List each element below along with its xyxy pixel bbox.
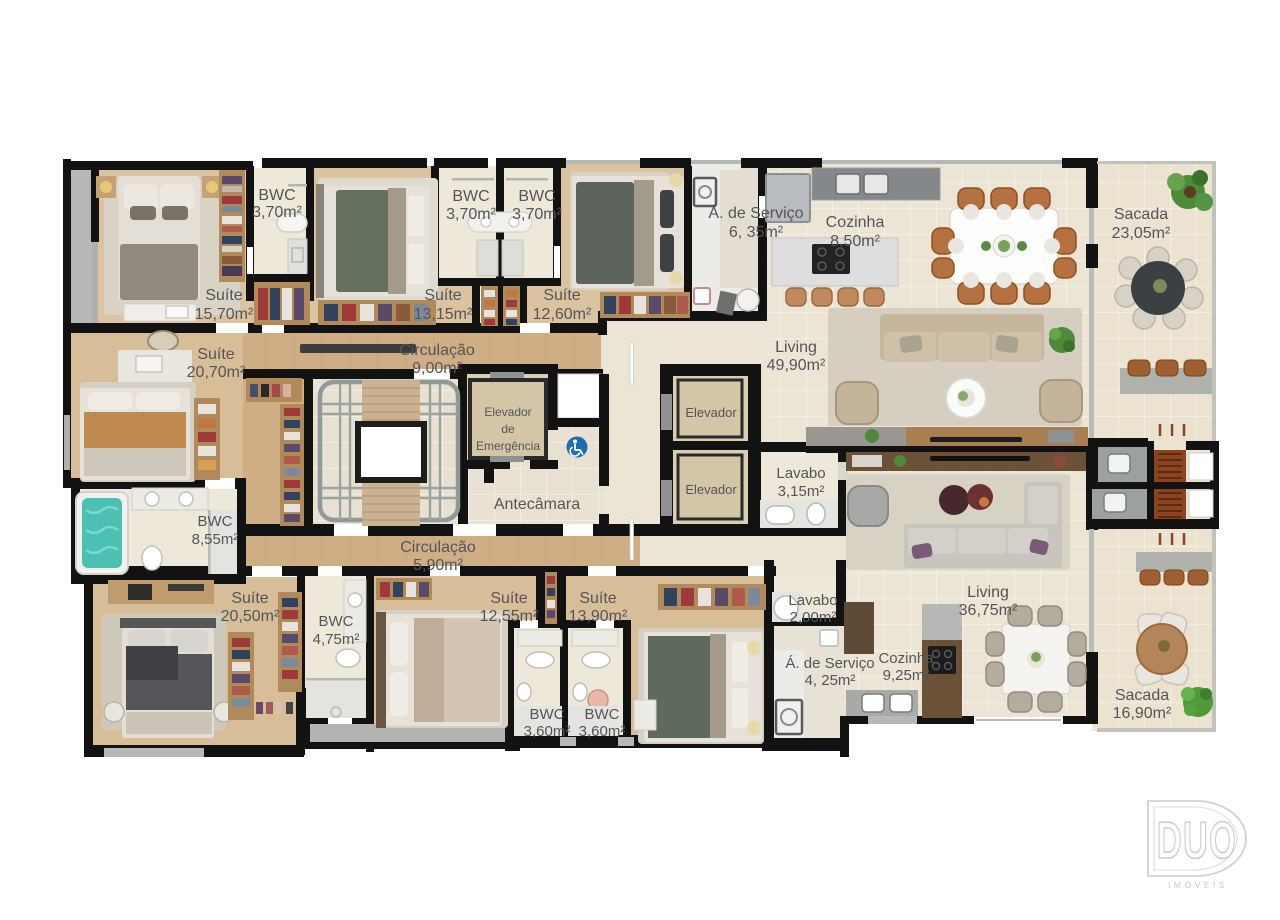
svg-text:Suíte: Suíte [231,590,268,607]
svg-text:8,55m²: 8,55m² [192,531,239,548]
svg-text:3,70m²: 3,70m² [512,206,562,223]
svg-text:16,90m²: 16,90m² [1113,705,1172,722]
svg-text:3,60m²: 3,60m² [524,723,571,740]
svg-text:Suíte: Suíte [579,590,616,607]
svg-text:Á. de Serviço: Á. de Serviço [785,655,874,672]
svg-text:4, 25m²: 4, 25m² [805,672,856,689]
svg-text:Lavabo: Lavabo [788,592,837,609]
svg-text:Cozinha: Cozinha [878,650,934,667]
svg-text:Elevador: Elevador [484,405,531,419]
svg-text:23,05m²: 23,05m² [1112,225,1171,242]
svg-text:BWC: BWC [452,188,489,205]
svg-text:Antecâmara: Antecâmara [494,496,580,513]
svg-text:BWC: BWC [530,706,565,723]
svg-text:2,00m²: 2,00m² [790,609,837,626]
svg-text:BWC: BWC [258,187,295,204]
svg-text:Circulação: Circulação [399,342,475,359]
svg-text:DUO: DUO [1157,812,1237,870]
svg-text:BWC: BWC [585,706,620,723]
svg-text:Suíte: Suíte [205,287,242,304]
svg-text:BWC: BWC [319,613,354,630]
svg-text:Cozinha: Cozinha [826,214,885,231]
svg-text:de: de [501,422,515,436]
svg-text:IMÓVEIS: IMÓVEIS [1168,880,1228,890]
svg-text:9,00m²: 9,00m² [412,360,462,377]
svg-text:3,70m²: 3,70m² [446,206,496,223]
svg-text:Elevador: Elevador [685,482,737,497]
svg-text:20,50m²: 20,50m² [221,608,280,625]
svg-text:Suíte: Suíte [543,287,580,304]
svg-text:13,15m²: 13,15m² [414,306,473,323]
svg-text:Elevador: Elevador [685,405,737,420]
svg-text:Circulação: Circulação [400,539,476,556]
svg-text:3,15m²: 3,15m² [778,483,825,500]
svg-text:Suíte: Suíte [424,287,461,304]
svg-text:15,70m²: 15,70m² [195,306,254,323]
svg-text:Suíte: Suíte [197,346,234,363]
svg-text:12,60m²: 12,60m² [533,306,592,323]
svg-text:12,55m²: 12,55m² [480,608,539,625]
svg-text:Sacada: Sacada [1114,206,1168,223]
svg-text:Emergência: Emergência [476,439,540,453]
svg-text:4,75m²: 4,75m² [313,631,360,648]
svg-text:Living: Living [967,584,1009,601]
svg-text:Sacada: Sacada [1115,687,1169,704]
svg-text:36,75m²: 36,75m² [959,602,1018,619]
svg-text:49,90m²: 49,90m² [767,357,826,374]
svg-text:6, 35m²: 6, 35m² [729,224,784,241]
svg-text:BWC: BWC [198,513,233,530]
svg-text:13,90m²: 13,90m² [569,608,628,625]
svg-text:3,70m²: 3,70m² [252,204,302,221]
svg-text:20,70m²: 20,70m² [187,364,246,381]
svg-text:Suíte: Suíte [490,590,527,607]
svg-text:3,60m²: 3,60m² [579,723,626,740]
svg-text:8,50m²: 8,50m² [830,233,880,250]
svg-text:9,25m²: 9,25m² [883,667,930,684]
svg-text:Á. de Serviço: Á. de Serviço [708,203,803,222]
svg-text:BWC: BWC [518,188,555,205]
svg-text:Living: Living [775,339,817,356]
svg-text:Lavabo: Lavabo [776,465,825,482]
svg-text:5,90m²: 5,90m² [413,557,463,574]
